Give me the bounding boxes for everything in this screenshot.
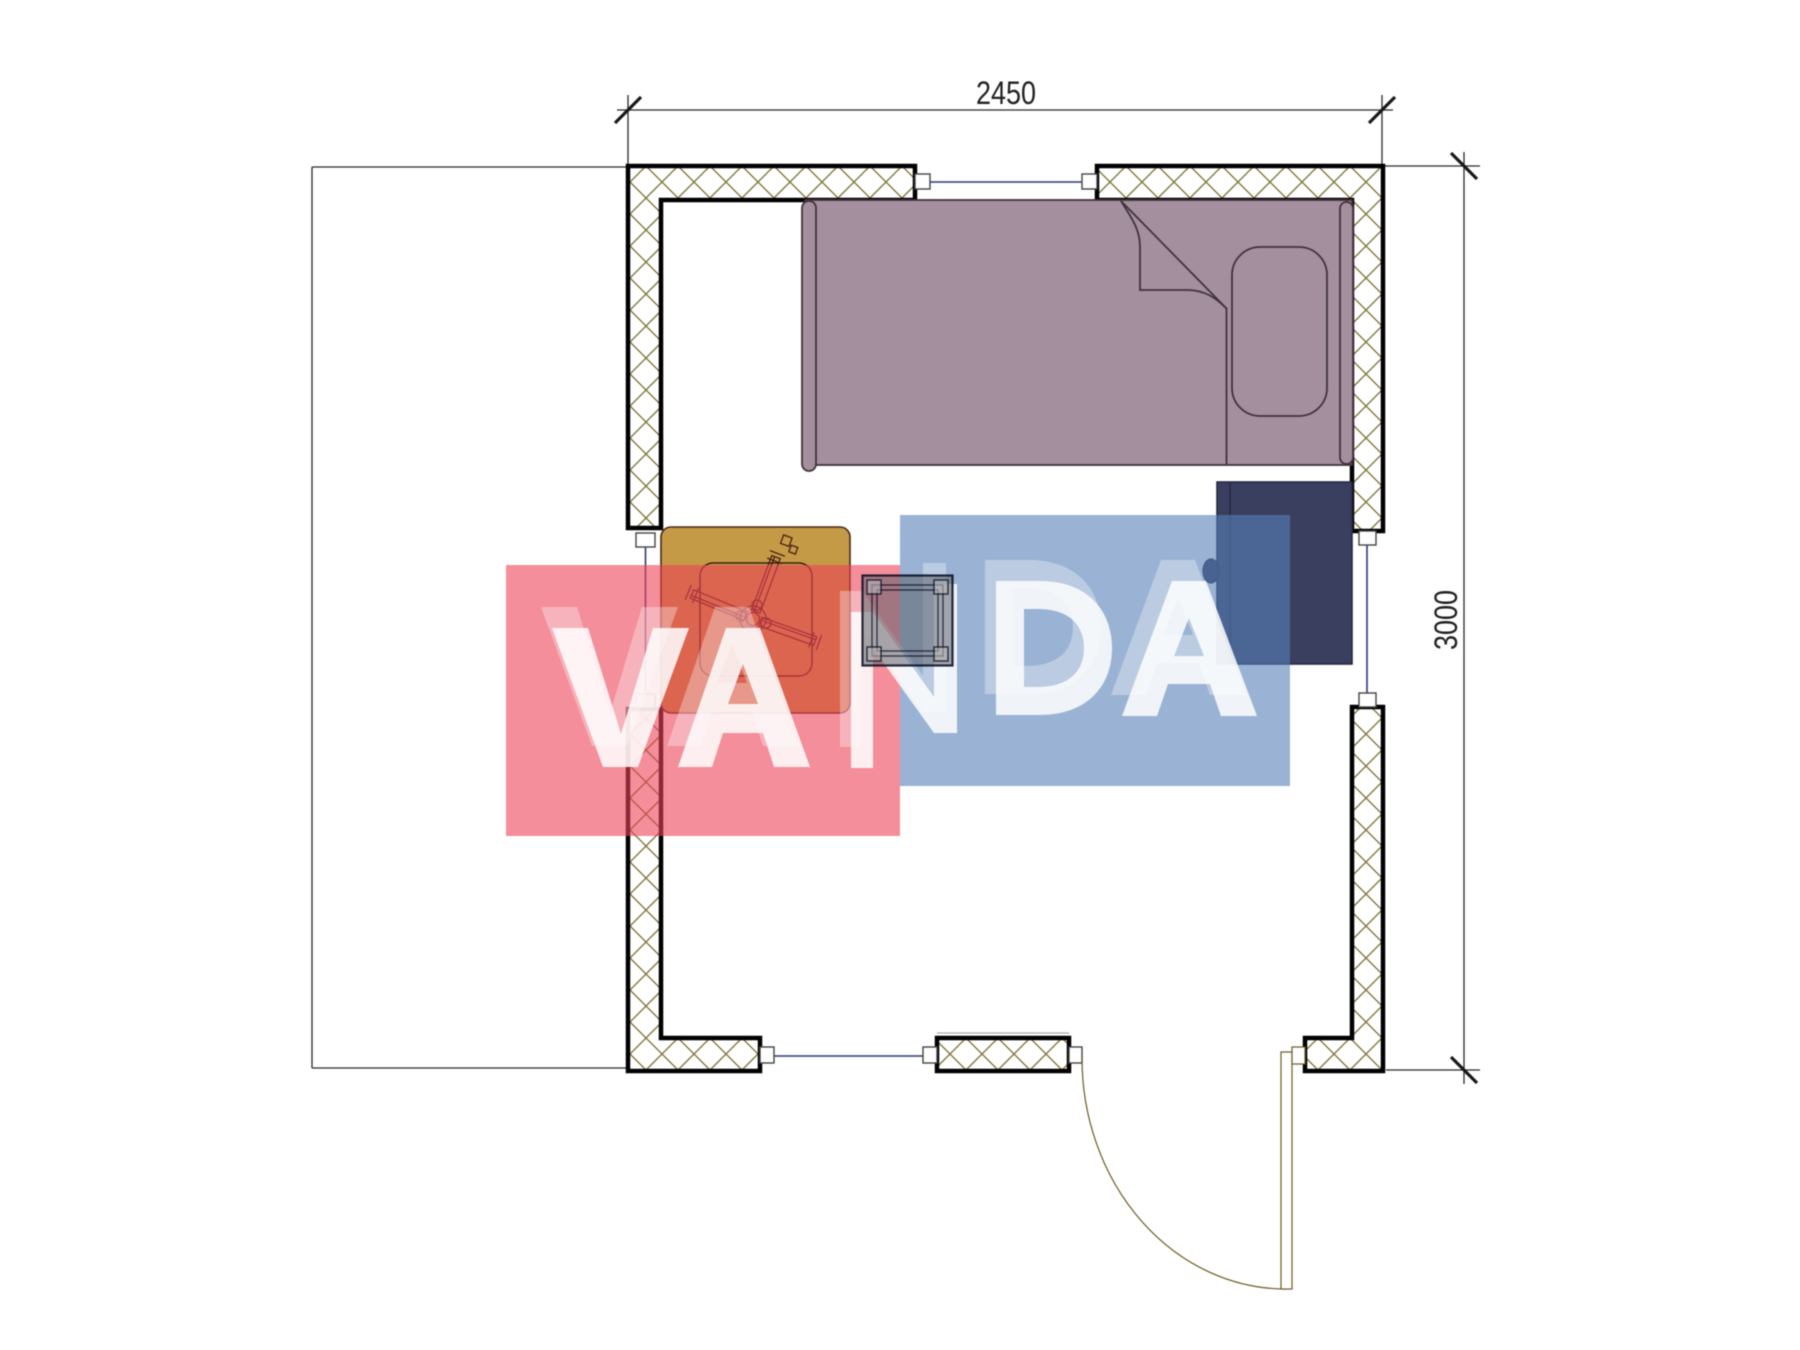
svg-text:3000: 3000	[1428, 590, 1464, 650]
svg-text:2450: 2450	[976, 75, 1036, 111]
